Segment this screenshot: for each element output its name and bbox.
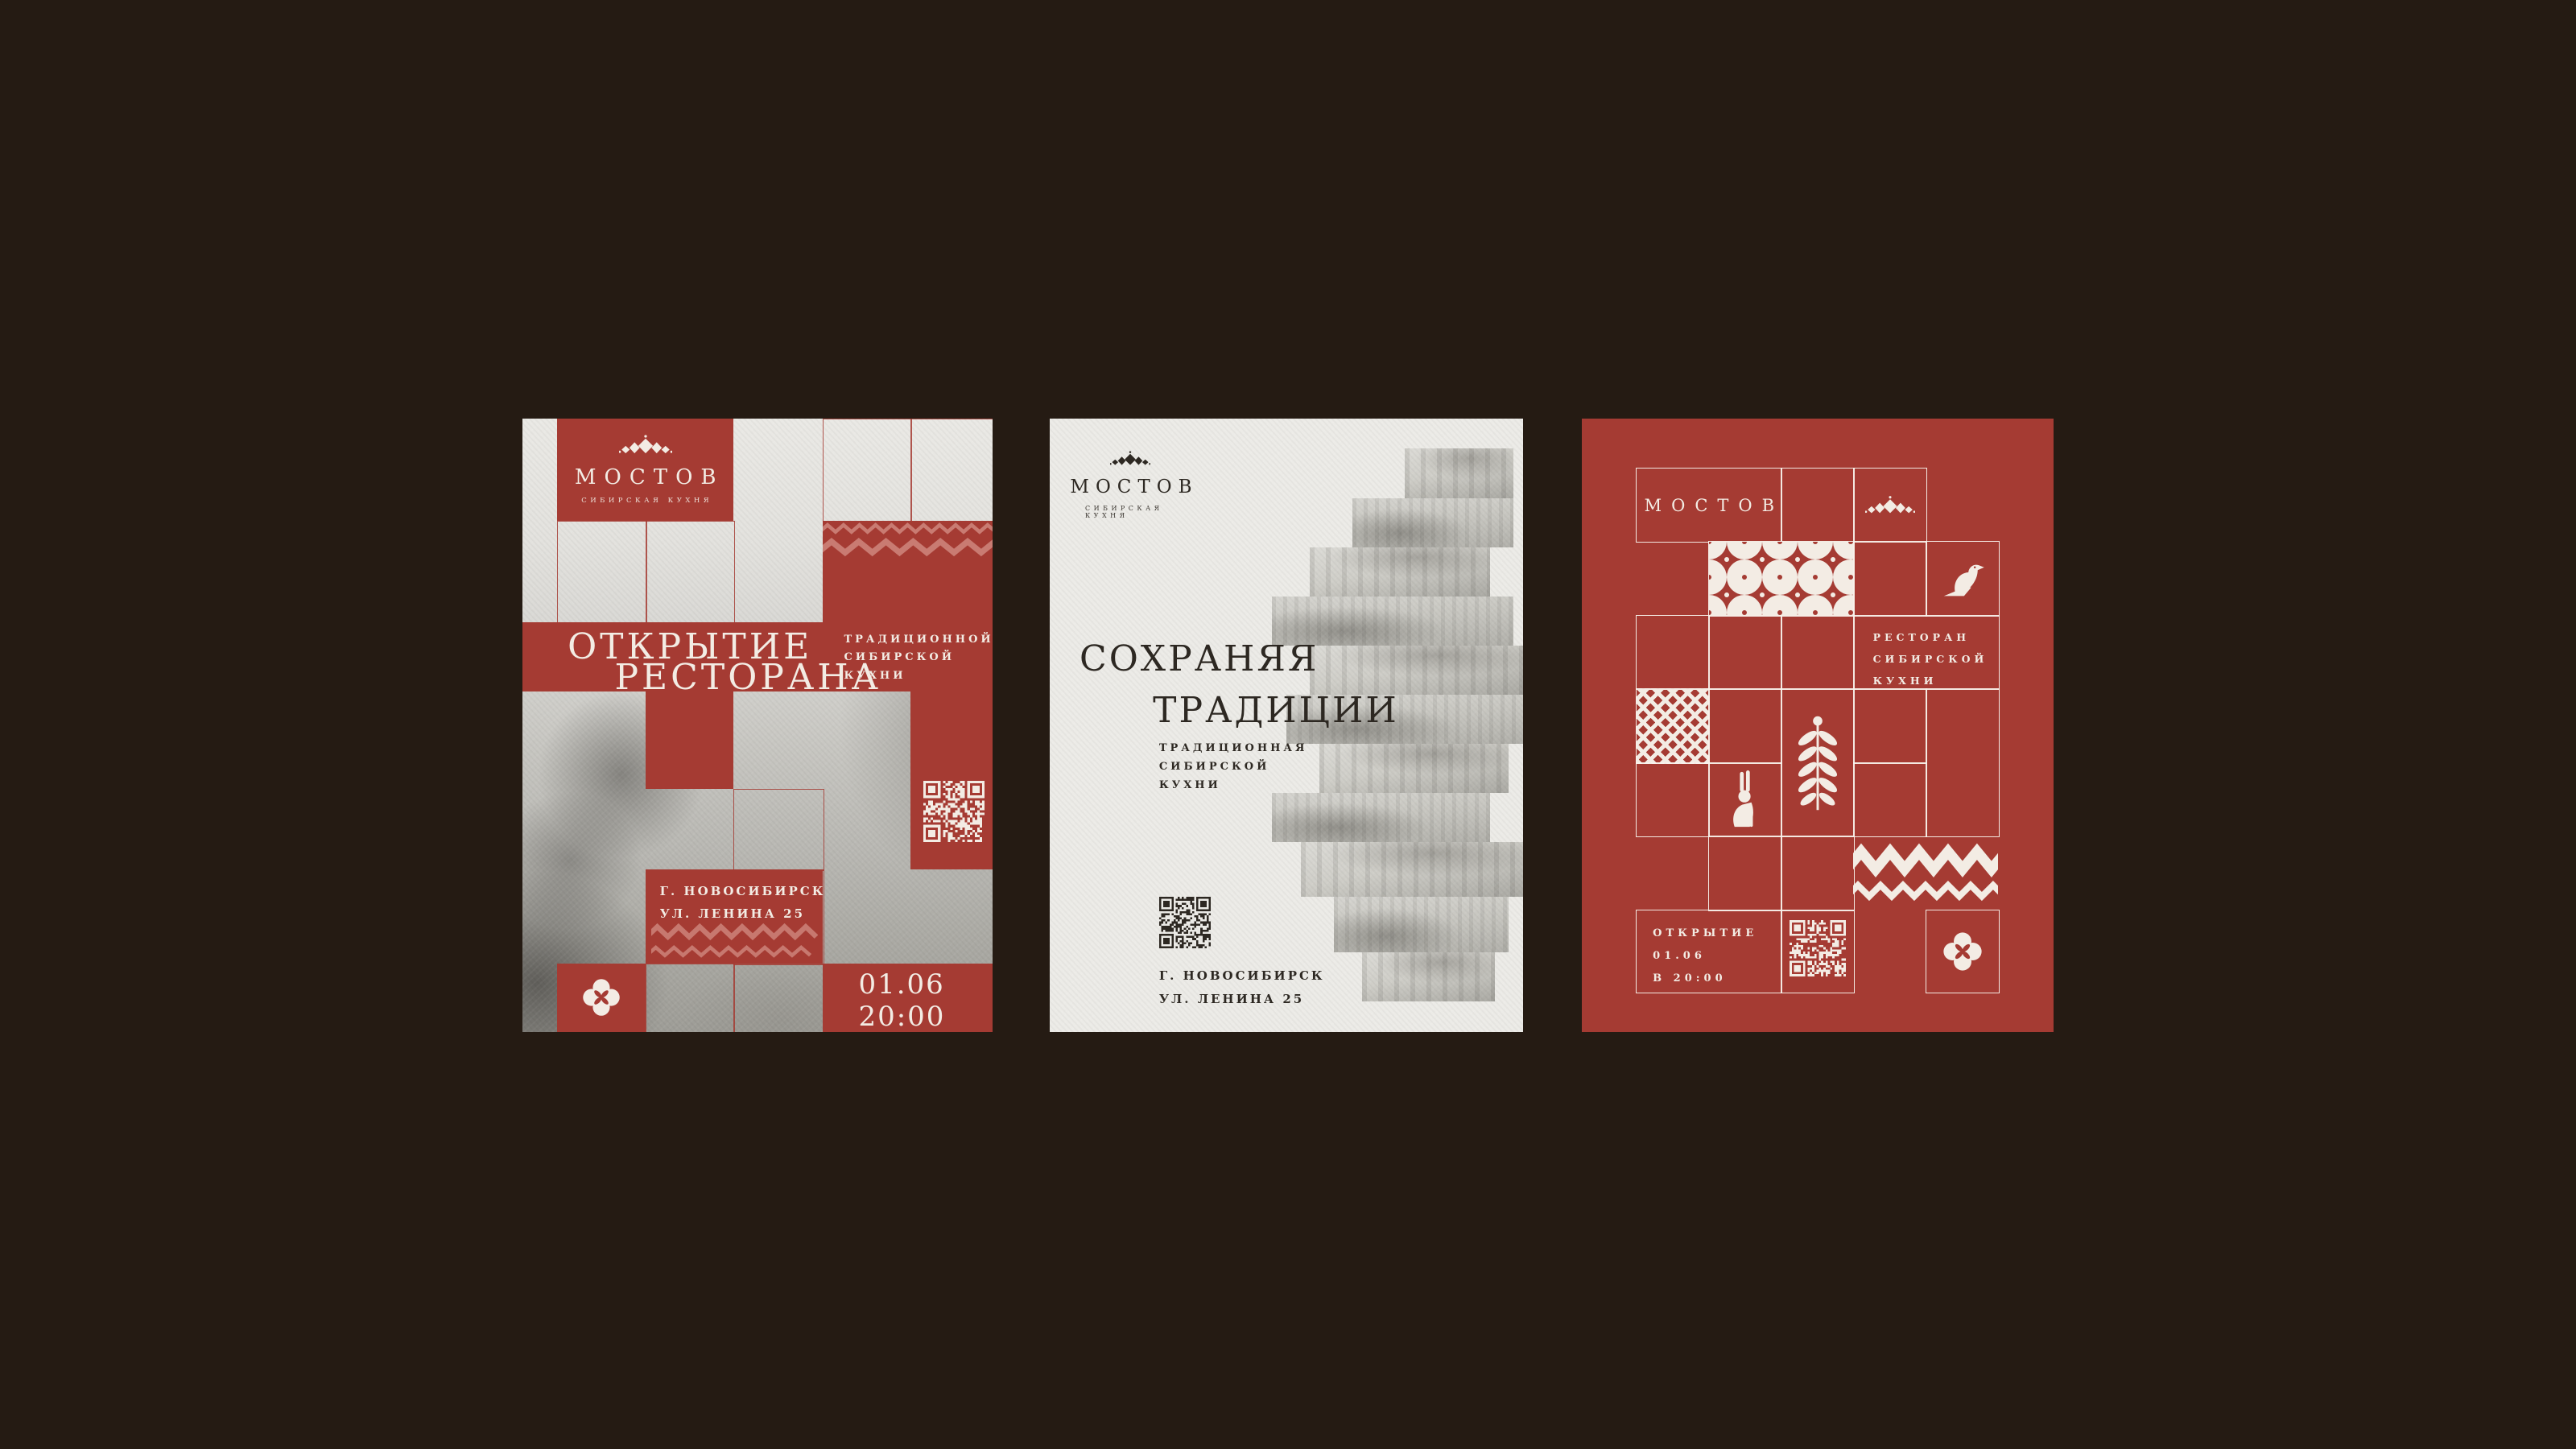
event-date: 01.06 <box>858 968 945 1001</box>
poster-title-line-2: РЕСТОРАНА <box>614 657 881 698</box>
grid-cell <box>1853 762 1927 837</box>
poster-subtitle: ТРАДИЦИОННАЯ СИБИРСКОЙ КУХНИ <box>1159 740 1308 795</box>
poster-brand-grid: МОСТОВ <box>1582 419 2054 1032</box>
address: Г. НОВОСИБИРСК УЛ. ЛЕНИНА 25 <box>1159 964 1325 1010</box>
zigzag-ornament <box>1853 836 1998 909</box>
grid-cell <box>1781 468 1855 543</box>
subtitle-line: СИБИРСКОЙ <box>1159 758 1308 777</box>
poster-title-line-1: СОХРАНЯЯ <box>1080 638 1319 679</box>
grid-cell <box>1853 541 1927 616</box>
address-line-1: Г. НОВОСИБИРСК <box>660 880 826 903</box>
zigzag-ornament <box>651 923 818 960</box>
stage: { "stage": { "background": "#251b13" }, … <box>0 0 2576 1449</box>
crown-ornament-icon <box>1110 451 1150 467</box>
brand-tagline: СИБИРСКАЯ КУХНЯ <box>1082 505 1179 519</box>
grid-cell <box>646 521 735 624</box>
crown-ornament-icon <box>619 435 672 456</box>
hare-icon <box>1728 770 1763 828</box>
datetime-block: 01.06 20:00 <box>823 964 993 1032</box>
clover-cell <box>1926 910 2000 994</box>
brand-name: МОСТОВ <box>1635 496 1784 515</box>
poster-traditions: МОСТОВ СИБИРСКАЯ КУХНЯ СОХРАНЯЯ ТРАДИЦИИ… <box>1050 419 1523 1032</box>
grid-cell <box>1636 615 1710 690</box>
ornament-block <box>823 521 993 622</box>
bird-icon <box>1939 559 1986 599</box>
address-block: Г. НОВОСИБИРСК УЛ. ЛЕНИНА 25 <box>646 869 823 964</box>
bird-cell <box>1926 541 2000 616</box>
address-line-2: УЛ. ЛЕНИНА 25 <box>1159 988 1325 1011</box>
grid-cell <box>1708 836 1782 910</box>
subtitle-line: ТРАДИЦИОННОЙ <box>844 631 993 650</box>
grid-cell <box>557 521 647 624</box>
grid-cell <box>1781 615 1855 690</box>
subtitle-line: ТРАДИЦИОННАЯ <box>1159 740 1308 758</box>
grid-cell <box>646 964 735 1032</box>
opening-line: 01.06 <box>1653 945 1757 968</box>
grid-cell <box>1853 688 1927 763</box>
grid-cell <box>733 964 824 1032</box>
brand-tagline: СИБИРСКАЯ КУХНЯ <box>578 497 712 505</box>
crown-ornament-icon <box>1865 496 1915 515</box>
zigzag-ornament <box>823 521 993 559</box>
subtitle-line: КУХНИ <box>844 667 993 686</box>
qr-cell <box>1781 910 1855 994</box>
grid-cell <box>823 419 912 522</box>
qr-code <box>923 781 985 842</box>
brand-name: МОСТОВ <box>567 465 724 489</box>
opening-line: ОТКРЫТИЕ <box>1653 923 1757 945</box>
qr-code <box>1790 920 1846 976</box>
grid-cell <box>1781 836 1855 910</box>
grid-cell-tall <box>1926 688 2000 837</box>
rosette-pattern-cell <box>1708 541 1855 616</box>
grid-cell <box>910 419 993 522</box>
zigzag-ornament-band <box>1853 836 1998 909</box>
clover-cell <box>557 964 646 1032</box>
wheat-cell <box>1781 688 1855 837</box>
grid-cell <box>1708 688 1782 763</box>
brand-name-cell: МОСТОВ <box>1636 468 1782 543</box>
grid-cell <box>733 789 824 871</box>
subtitle-line: СИБИРСКОЙ <box>844 649 993 667</box>
clover-flower-icon <box>580 976 622 1018</box>
tagline-line: СИБИРСКОЙ <box>1873 649 1988 671</box>
cross-stitch-pattern-cell <box>1636 688 1710 763</box>
opening-info-cell: ОТКРЫТИЕ 01.06 В 20:00 <box>1636 910 1782 994</box>
poster-opening: МОСТОВ СИБИРСКАЯ КУХНЯ ОТКРЫТИЕ РЕСТОРАН… <box>522 419 993 1032</box>
grid-cell <box>1708 615 1782 690</box>
address-line-1: Г. НОВОСИБИРСК <box>1159 964 1325 988</box>
logo-block: МОСТОВ СИБИРСКАЯ КУХНЯ <box>557 419 733 521</box>
hare-cell <box>1708 762 1782 837</box>
rosette-pattern <box>1709 542 1854 615</box>
wheat-branch-icon <box>1791 703 1844 824</box>
event-time: 20:00 <box>858 1001 945 1032</box>
clover-flower-icon <box>1941 930 1984 973</box>
qr-code <box>1159 897 1211 948</box>
brand-name: МОСТОВ <box>1062 477 1198 497</box>
poster-subtitle: ТРАДИЦИОННОЙ СИБИРСКОЙ КУХНИ <box>844 631 993 686</box>
address: Г. НОВОСИБИРСК УЛ. ЛЕНИНА 25 <box>660 880 826 926</box>
logo-block: МОСТОВ СИБИРСКАЯ КУХНЯ <box>1082 451 1179 519</box>
subtitle-line: КУХНИ <box>1159 777 1308 795</box>
tagline-line: РЕСТОРАН <box>1873 627 1988 649</box>
title-band-leg <box>646 691 733 789</box>
opening-line: В 20:00 <box>1653 968 1757 990</box>
tagline-cell: РЕСТОРАН СИБИРСКОЙ КУХНИ <box>1853 615 2000 690</box>
crown-cell <box>1853 468 1927 543</box>
grid-cell <box>1636 762 1710 837</box>
poster-title-line-2: ТРАДИЦИИ <box>1153 690 1399 731</box>
